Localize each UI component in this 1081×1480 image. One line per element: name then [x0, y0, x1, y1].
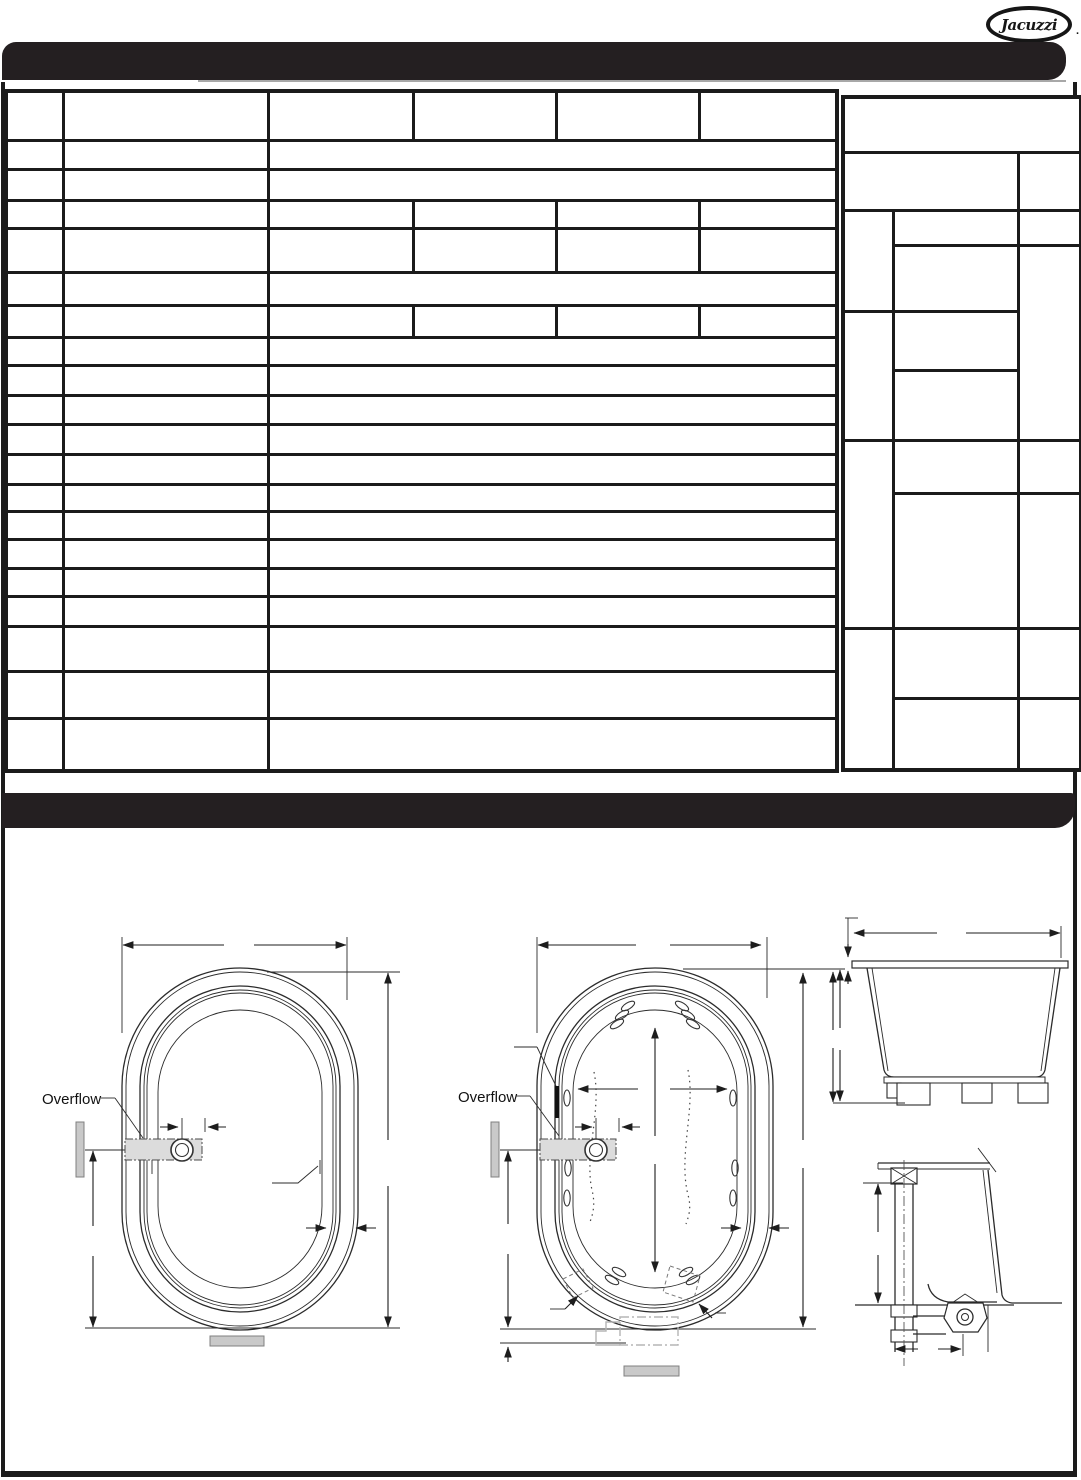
spec-cell — [893, 628, 1018, 698]
spec-cell — [413, 305, 556, 337]
plain-tub-top-view: Overflow — [42, 937, 400, 1346]
suction-fitting-callout — [514, 1047, 557, 1118]
spec-cell — [556, 305, 699, 337]
spec-cell — [268, 454, 837, 484]
spec-cell — [1018, 210, 1081, 245]
spec-cell — [268, 91, 413, 140]
spec-cell — [893, 210, 1018, 245]
spec-cell — [63, 539, 268, 568]
spec-cell — [893, 370, 1018, 440]
spec-cell — [268, 568, 837, 596]
spec-cell — [6, 596, 63, 626]
spec-sheet-page: Jacuzzi . — [0, 0, 1081, 1480]
spec-cell — [63, 568, 268, 596]
spec-cell — [843, 311, 893, 440]
spec-cell — [6, 365, 63, 395]
spec-cell — [6, 568, 63, 596]
spec-cell — [1018, 698, 1081, 770]
spec-cell — [63, 305, 268, 337]
spec-cell — [63, 337, 268, 365]
title-bar — [2, 42, 1066, 80]
overflow-leader-line — [115, 1098, 143, 1138]
spec-cell — [6, 671, 63, 718]
spec-table-main — [4, 89, 839, 773]
spec-cell — [63, 484, 268, 511]
overflow-label: Overflow — [42, 1091, 101, 1108]
bottom-scale-bar — [624, 1366, 679, 1376]
spec-cell — [699, 228, 837, 272]
spec-cell — [268, 596, 837, 626]
spec-cell — [268, 305, 413, 337]
spec-cell — [6, 91, 63, 140]
spec-cell — [63, 424, 268, 454]
spec-cell — [843, 440, 893, 628]
spec-cell — [268, 718, 837, 771]
jacuzzi-logo: Jacuzzi . — [984, 4, 1080, 40]
deck-marker — [491, 1122, 499, 1177]
rim-dimensions — [845, 918, 1061, 984]
spec-cell — [6, 484, 63, 511]
spec-cell — [6, 272, 63, 305]
spec-table-side — [841, 95, 1081, 772]
spec-cell — [6, 424, 63, 454]
spec-cell — [6, 140, 63, 169]
spec-cell — [268, 511, 837, 539]
spec-cell — [63, 395, 268, 424]
spec-cell — [6, 395, 63, 424]
bottom-scale-bar — [210, 1336, 264, 1346]
spec-cell — [6, 228, 63, 272]
spec-cell — [1018, 245, 1081, 440]
spec-cell — [268, 272, 837, 305]
spec-cell — [268, 140, 837, 169]
spec-cell — [63, 140, 268, 169]
spec-cell — [63, 671, 268, 718]
spec-cell — [413, 200, 556, 228]
spec-cell — [699, 200, 837, 228]
spec-cell — [6, 305, 63, 337]
spec-cell — [893, 698, 1018, 770]
spec-cell — [6, 200, 63, 228]
spec-cell — [63, 365, 268, 395]
spec-cell — [268, 539, 837, 568]
spec-cell — [63, 626, 268, 671]
spec-cell — [6, 337, 63, 365]
spec-cell — [893, 493, 1018, 628]
spec-cell — [893, 245, 1018, 311]
spec-cell — [413, 228, 556, 272]
width-dimension — [537, 937, 767, 1033]
jacuzzi-logo-mark: . — [1076, 25, 1079, 37]
tub-side-elevation — [833, 918, 1068, 1105]
jacuzzi-logo-text: Jacuzzi — [1001, 16, 1057, 34]
spec-cell — [63, 454, 268, 484]
pump-outline-hidden — [596, 1317, 678, 1345]
spec-cell — [843, 152, 1018, 210]
spec-cell — [63, 596, 268, 626]
spec-cell — [6, 454, 63, 484]
spec-cell — [63, 169, 268, 200]
jacuzzi-logo-oval-icon: Jacuzzi — [986, 6, 1072, 43]
spec-cell — [1018, 628, 1081, 698]
section-bar — [2, 793, 1075, 828]
overflow-label: Overflow — [458, 1089, 517, 1106]
spec-cell — [556, 228, 699, 272]
spec-cell — [893, 440, 1018, 493]
spec-cell — [268, 626, 837, 671]
spec-cell — [63, 200, 268, 228]
drain-overflow-assembly — [540, 1139, 616, 1161]
tub-feet — [887, 1083, 1048, 1105]
spec-cell — [268, 228, 413, 272]
drain-overflow-assembly — [125, 1139, 202, 1161]
spec-cell — [268, 169, 837, 200]
spec-cell — [556, 91, 699, 140]
deck-marker — [76, 1122, 84, 1177]
spec-cell — [6, 718, 63, 771]
spec-cell — [699, 305, 837, 337]
spec-cell — [63, 718, 268, 771]
jetted-tub-top-view: Overflow — [458, 937, 845, 1376]
spec-cell — [1018, 440, 1081, 493]
spec-cell — [1018, 493, 1081, 628]
spec-cell — [1018, 152, 1081, 210]
technical-drawings: Overflow — [0, 828, 1081, 1480]
spec-cell — [63, 228, 268, 272]
spec-cell — [6, 626, 63, 671]
drain-plumbing-detail — [855, 1148, 1062, 1366]
spec-cell — [268, 365, 837, 395]
spec-cell — [843, 210, 893, 311]
spec-cell — [63, 511, 268, 539]
spec-cell — [843, 628, 893, 770]
spec-cell — [268, 424, 837, 454]
overflow-standpipe — [891, 1160, 917, 1366]
spec-cell — [63, 91, 268, 140]
spec-cell — [6, 539, 63, 568]
spec-cell — [268, 671, 837, 718]
drain-fitting — [913, 1294, 987, 1334]
spec-cell — [699, 91, 837, 140]
spec-cell — [6, 511, 63, 539]
spec-cell — [268, 337, 837, 365]
spec-cell — [268, 200, 413, 228]
spec-cell — [6, 169, 63, 200]
spec-cell — [843, 97, 1081, 152]
spec-cell — [556, 200, 699, 228]
spec-cell — [413, 91, 556, 140]
spec-cell — [893, 311, 1018, 370]
spec-cell — [268, 395, 837, 424]
spec-cell — [63, 272, 268, 305]
wall-thickness-dimension — [152, 1160, 376, 1228]
spec-cell — [268, 484, 837, 511]
